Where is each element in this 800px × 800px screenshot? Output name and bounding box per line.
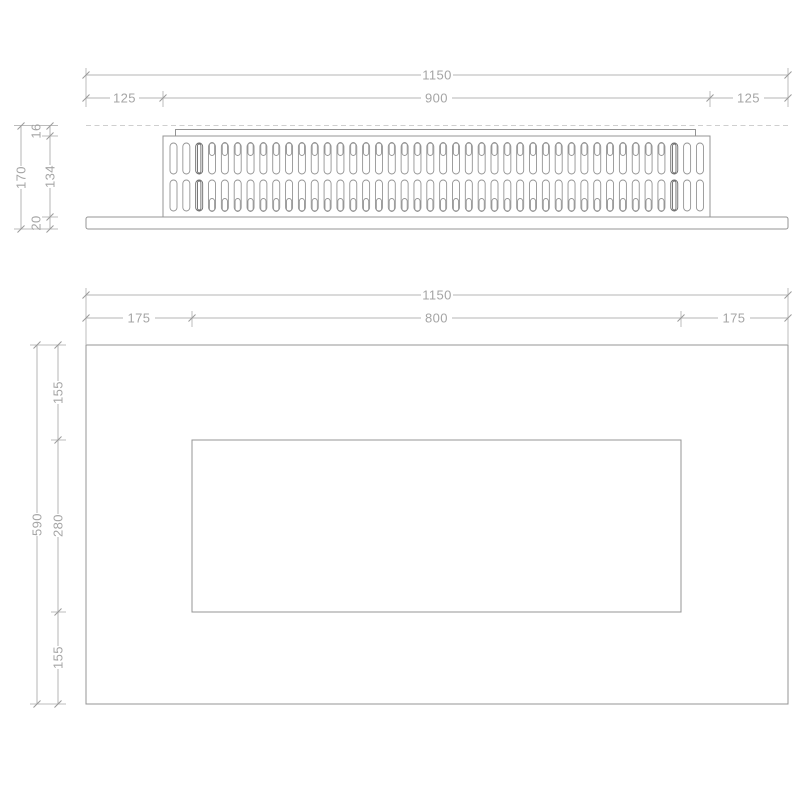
grille-slot xyxy=(696,143,703,174)
dim-front-left-margin: 175 xyxy=(128,311,151,326)
grille-slot xyxy=(671,180,678,211)
grille-slot xyxy=(183,143,190,174)
grille-slot xyxy=(196,143,203,174)
dim-front-right-margin: 175 xyxy=(723,311,746,326)
top-view-object xyxy=(86,126,788,230)
dim-top-total-height: 170 xyxy=(14,166,29,189)
grille-slot xyxy=(696,180,703,211)
dim-top-right-offset: 125 xyxy=(737,91,760,106)
dim-top-total-width: 1150 xyxy=(422,68,452,83)
front-opening xyxy=(192,440,681,612)
grille-slot xyxy=(684,180,691,211)
grille-slot xyxy=(170,143,177,174)
dim-top-base-height: 20 xyxy=(29,215,44,230)
grille-slot xyxy=(196,180,203,211)
front-view: 1150 175 800 175 590 155 280 155 xyxy=(30,288,792,708)
dim-front-top-margin: 155 xyxy=(51,381,66,404)
dim-front-bottom-margin: 155 xyxy=(51,646,66,669)
dim-top-left-offset: 125 xyxy=(113,91,136,106)
grille-slot xyxy=(170,180,177,211)
dim-top-grille-width: 900 xyxy=(425,91,448,106)
dim-front-opening-height: 280 xyxy=(51,514,66,537)
grille-slot xyxy=(671,143,678,174)
dim-front-total-height: 590 xyxy=(30,513,45,536)
grille-slot xyxy=(183,180,190,211)
dim-top-lip-height: 16 xyxy=(29,123,44,138)
base-plate xyxy=(86,217,788,229)
top-lip xyxy=(176,130,696,137)
technical-drawing-canvas: 1150 125 900 125 170 16 134 20 xyxy=(0,0,800,800)
dim-top-body-height: 134 xyxy=(43,165,58,188)
dim-front-total-width: 1150 xyxy=(422,288,452,303)
drawing-svg: 1150 125 900 125 170 16 134 20 xyxy=(0,0,800,800)
grille-slot xyxy=(684,143,691,174)
grille-body xyxy=(163,136,710,217)
front-view-object xyxy=(86,345,788,704)
dim-front-opening-width: 800 xyxy=(425,311,448,326)
top-view: 1150 125 900 125 170 16 134 20 xyxy=(14,68,792,233)
